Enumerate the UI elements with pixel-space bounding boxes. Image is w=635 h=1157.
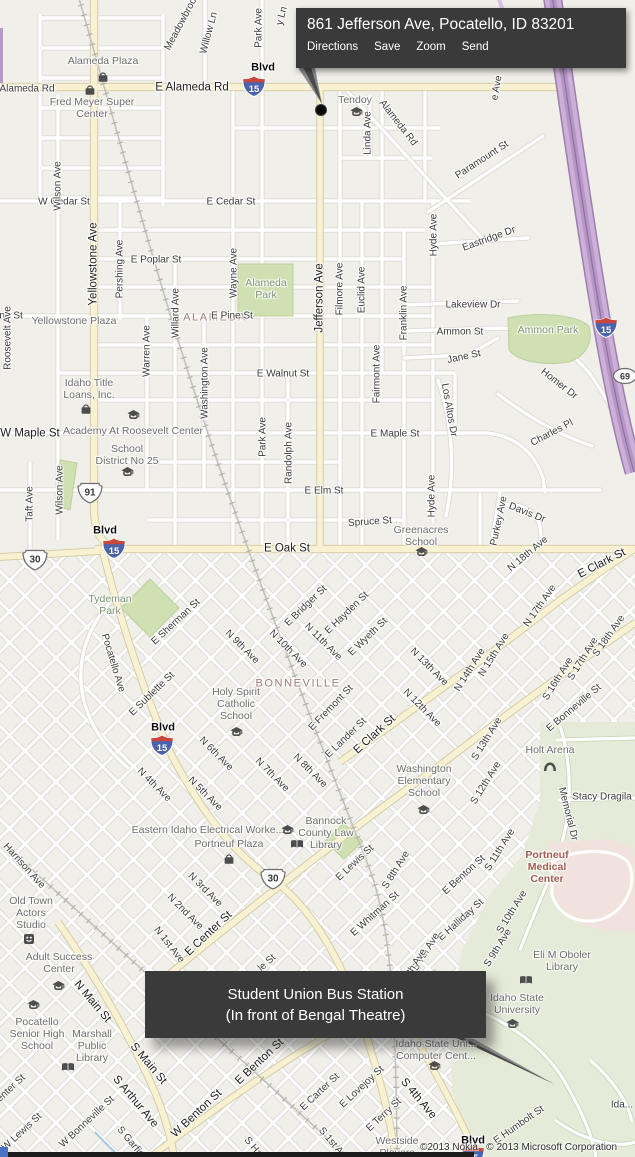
- map-label: Harrison Ave: [1, 841, 47, 891]
- school-icon: [121, 465, 134, 483]
- stadium-icon: [543, 759, 557, 777]
- map-label: Ida...: [611, 1100, 633, 1111]
- map-label: W Cedar St: [38, 197, 90, 208]
- map-label: Franklin Ave: [399, 286, 410, 341]
- location-tooltip: 861 Jefferson Ave, Pocatello, ID 83201 D…: [296, 8, 626, 68]
- map-label: Willow Ln: [198, 11, 220, 55]
- svg-text:69: 69: [620, 372, 630, 382]
- map-label: BONNEVILLE: [255, 679, 340, 690]
- tooltip-actions: Directions Save Zoom Send: [296, 34, 626, 53]
- map-label: Meadowbrook: [162, 0, 201, 52]
- map-label: Jane St: [446, 348, 481, 366]
- map-label: E Maple St: [371, 429, 420, 440]
- map-label: School District No 25: [95, 443, 158, 467]
- map-label: N 8th Ave: [291, 752, 329, 790]
- map-label: E Wyeth St: [346, 616, 390, 659]
- map-label: S 12th Ave: [469, 760, 504, 807]
- map-label: Yellowstone Plaza: [32, 315, 117, 327]
- map-label: Pershing Ave: [115, 240, 126, 299]
- map-label: Willard Ave: [171, 288, 182, 338]
- map-label: E Pine St: [211, 311, 253, 322]
- map-label: E Benton St: [440, 853, 487, 897]
- school-icon: [350, 105, 363, 123]
- school-icon: [230, 725, 243, 743]
- map-label: Park Ave: [254, 8, 265, 48]
- map-label: Park Ave: [258, 417, 269, 457]
- svg-text:15: 15: [249, 84, 260, 95]
- school-icon: [417, 803, 430, 821]
- map-label: S 8th Ave: [380, 849, 412, 891]
- shop-icon: [80, 402, 92, 420]
- map-label: S 13th Ave: [470, 716, 505, 763]
- map-label: E Humbolt St: [492, 1104, 547, 1147]
- map-label: E Oak St: [264, 544, 310, 555]
- map-label: Roosevelt Ave: [3, 306, 14, 370]
- map-label: W Center St: [0, 1072, 28, 1117]
- svg-text:15: 15: [157, 743, 168, 754]
- map-label: Fairmont Ave: [372, 345, 383, 404]
- map-label: Blvd: [251, 63, 275, 74]
- map-label: N 3rd Ave: [186, 871, 225, 910]
- map-label: Blvd: [151, 723, 175, 734]
- map-label: Adult Success Center: [26, 951, 93, 975]
- map-label: W Benton St: [170, 1088, 225, 1140]
- map-label: Idaho State University: [490, 992, 544, 1016]
- map-label: Wilson Ave: [55, 465, 66, 514]
- bus-station-callout: Student Union Bus Station (In front of B…: [145, 971, 486, 1038]
- school-icon: [127, 408, 140, 426]
- map-label: Wayne Ave: [229, 248, 240, 298]
- map-label: W Bonneville St: [57, 1094, 116, 1150]
- map-label: E Halliday St: [436, 897, 486, 943]
- map-label: Holy Spirit Catholic School: [212, 686, 260, 722]
- map-label: E Benton St: [234, 1037, 286, 1087]
- shop-icon: [223, 852, 235, 870]
- map-label: Paramount St: [453, 139, 510, 182]
- map-label: N 18th Ave: [506, 534, 550, 574]
- school-icon: [428, 1059, 441, 1077]
- shop-icon: [84, 83, 96, 101]
- map-label: N 12th Ave: [401, 687, 443, 729]
- map-label: Randolph Ave: [284, 422, 295, 484]
- map-label: E Elm St: [305, 486, 344, 497]
- map-label: S 9th Ave: [482, 927, 514, 969]
- svg-text:30: 30: [29, 555, 41, 566]
- map-label: Alameda Plaza: [68, 55, 139, 67]
- route-shield-15: 15: [102, 538, 126, 564]
- map-label: Washington Ave: [200, 347, 211, 419]
- map-label: Blvd: [93, 526, 117, 537]
- map-label: Warren Ave: [142, 325, 153, 377]
- map-label: Portneuf Plaza: [195, 838, 264, 850]
- map-label: S Arthur Ave: [110, 1074, 159, 1130]
- save-link[interactable]: Save: [374, 41, 400, 53]
- map-label: S 10th Ave: [495, 889, 530, 936]
- send-link[interactable]: Send: [462, 41, 489, 53]
- map-label: Eastern Idaho Electrical Worke...: [132, 824, 285, 836]
- map-label: Pocatello Ave: [99, 633, 127, 694]
- svg-text:15: 15: [109, 546, 120, 557]
- map-label: E Terry St: [364, 1096, 403, 1134]
- map-label: E Lovejoy St: [338, 1064, 387, 1110]
- route-shield-30: 30: [260, 868, 286, 895]
- route-shield-15: 15: [594, 317, 618, 343]
- map-label: Hyde Ave: [429, 214, 440, 257]
- map-label: Alameda Rd: [377, 98, 420, 148]
- map-label: y Ln: [274, 5, 290, 26]
- map-label: Taft Ave: [25, 486, 36, 521]
- callout-line1: Student Union Bus Station: [145, 984, 486, 1005]
- map-label: Eastridge Dr: [461, 224, 517, 253]
- book-icon: [519, 972, 533, 990]
- school-icon: [27, 998, 40, 1016]
- map-label: S 4th Ave: [398, 1077, 438, 1122]
- map-label: Eli M Oboler Library: [533, 949, 591, 973]
- map-label: Spruce St: [348, 515, 393, 529]
- map-label: N 10th Ave: [267, 628, 309, 670]
- map-label: Alameda Park: [245, 277, 286, 301]
- map-label: Bannock County Law Library: [298, 815, 353, 851]
- map-label: Alameda Rd: [0, 84, 55, 95]
- map-label: S Main St: [128, 1041, 168, 1086]
- map-label: N 1st Ave: [152, 925, 187, 965]
- theater-icon: [23, 932, 35, 950]
- book-icon: [61, 1059, 75, 1077]
- bottom-bar: [0, 1152, 474, 1157]
- map-label: Washington Elementary School: [396, 763, 451, 799]
- tooltip-address: 861 Jefferson Ave, Pocatello, ID 83201: [296, 8, 626, 34]
- map-label: E Carter St: [298, 1071, 342, 1113]
- map-label: E Whitman St: [349, 889, 402, 938]
- school-icon: [415, 545, 428, 563]
- west-highway-sliver: [0, 28, 3, 83]
- callout-line2: (In front of Bengal Theatre): [145, 1005, 486, 1026]
- map-label: Los Altos Dr: [439, 382, 459, 437]
- map-label: N 9th Ave: [223, 628, 261, 666]
- route-shield-15: 15: [242, 76, 266, 102]
- map-label: Purkey Ave: [488, 495, 509, 547]
- map-label: Old Town Actors Studio: [9, 895, 53, 931]
- map-label: E Hayden St: [323, 590, 371, 637]
- map-label: Pocatello Senior High School: [10, 1016, 65, 1052]
- map-label: Hyde Ave: [427, 475, 438, 518]
- shop-icon: [97, 70, 109, 88]
- map-label: Wilson Ave: [53, 161, 64, 210]
- map-label: Ammon St: [437, 327, 484, 338]
- zoom-link[interactable]: Zoom: [416, 41, 445, 53]
- map-label: E Bridger St: [283, 583, 329, 628]
- map-label: Homer Dr: [539, 366, 580, 401]
- map-label: W Maple St: [0, 429, 59, 440]
- svg-text:91: 91: [84, 488, 96, 499]
- school-icon: [52, 979, 65, 997]
- route-shield-15: 15: [150, 735, 174, 761]
- route-shield-30: 30: [22, 549, 48, 576]
- map-label: Lakeview Dr: [445, 300, 500, 311]
- map-label: E Sherman St: [149, 597, 202, 648]
- school-icon: [506, 1017, 519, 1035]
- map-label: N 5th Ave: [186, 775, 224, 813]
- map-label: E Sublette St: [127, 670, 177, 718]
- map-label: Yellowstone Ave: [89, 222, 100, 305]
- map-label: E Fremont St: [307, 683, 356, 733]
- map-label: Davis Dr: [507, 501, 547, 526]
- map-label: Holt Arena: [525, 744, 574, 756]
- map-label: S 18th Ave: [591, 613, 628, 659]
- directions-link[interactable]: Directions: [307, 41, 358, 53]
- map-label: N 7th Ave: [253, 756, 291, 794]
- map-viewport[interactable]: Alameda RdE Alameda RdAlameda PlazaFred …: [0, 0, 635, 1157]
- map-label: N 4th Ave: [135, 766, 173, 804]
- map-label: S 11th Ave: [483, 827, 517, 873]
- map-label: N Main St: [72, 979, 113, 1025]
- book-icon: [290, 836, 304, 854]
- map-label: Filmore Ave: [335, 263, 346, 316]
- map-label: Portneuf Medical Center: [525, 849, 568, 885]
- map-label: Jefferson Ave: [315, 263, 326, 332]
- map-label: Stacy Dragila: [572, 792, 631, 803]
- corner-accent: [0, 1147, 8, 1157]
- map-label: Academy At Roosevelt Center: [63, 425, 203, 437]
- map-label: Linda Ave: [363, 111, 374, 155]
- route-shield-69: 69: [612, 367, 635, 390]
- map-label: Ammon Park: [518, 324, 579, 336]
- svg-text:30: 30: [267, 874, 279, 885]
- svg-text:15: 15: [601, 325, 612, 336]
- map-label: N 13th Ave: [408, 646, 450, 688]
- map-label: Charles Pl: [529, 417, 575, 448]
- route-shield-91: 91: [77, 482, 103, 509]
- map-label: e Ave: [489, 75, 504, 101]
- location-pin[interactable]: [315, 104, 327, 116]
- map-label: N 17th Ave: [522, 583, 559, 629]
- map-label: E Walnut St: [257, 369, 309, 380]
- map-label: N 2nd Ave: [165, 892, 205, 932]
- map-label: E Clark St: [576, 547, 627, 580]
- map-label: Idaho Title Loans, Inc.: [63, 377, 114, 401]
- map-label: Marshall Public Library: [72, 1028, 112, 1064]
- map-label: E Poplar St: [131, 255, 182, 266]
- map-label: E Alameda Rd: [155, 83, 229, 94]
- map-label: Tydeman Park: [88, 593, 131, 617]
- map-label: E Cedar St: [207, 197, 256, 208]
- map-label: Euclid Ave: [357, 267, 368, 314]
